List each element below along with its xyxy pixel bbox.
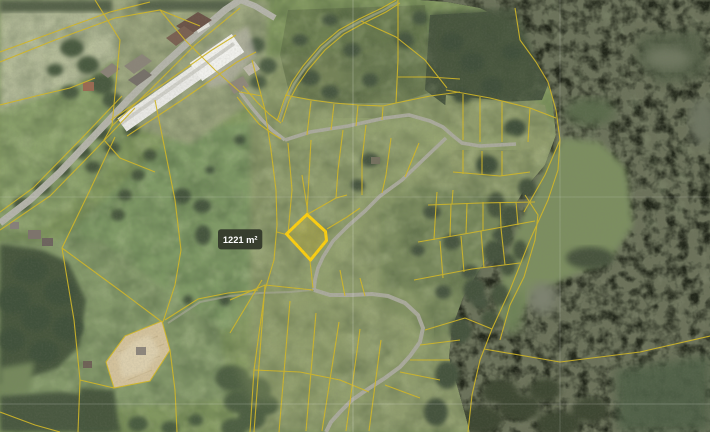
svg-text:1221 m²: 1221 m² [223,235,258,245]
